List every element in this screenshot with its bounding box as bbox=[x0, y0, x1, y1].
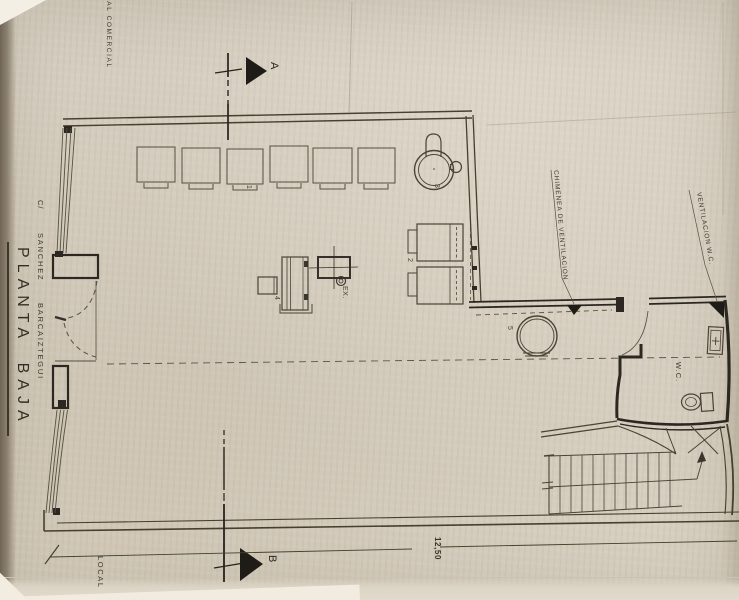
section-line-b bbox=[214, 430, 263, 582]
section-line-a bbox=[215, 53, 267, 140]
chimney-marker-icon bbox=[567, 305, 582, 315]
table-symbol bbox=[270, 146, 308, 182]
wc-room-label: W.C. bbox=[675, 362, 683, 382]
street-name-1: SANCHEZ bbox=[37, 233, 45, 281]
street-prefix: C/ bbox=[37, 200, 45, 210]
page-title: PLANTA BAJA bbox=[14, 247, 30, 427]
storefront-glazing bbox=[46, 128, 75, 513]
item-number-5: 5 bbox=[506, 326, 513, 330]
street-name-2: BARCAIZTEGUI bbox=[37, 303, 45, 380]
dimension-line bbox=[45, 541, 737, 564]
paper-creases bbox=[349, 2, 737, 215]
section-label-a: A bbox=[268, 62, 279, 69]
zone-label-bottom: LOCAL bbox=[97, 556, 105, 589]
toilet-symbol bbox=[682, 393, 714, 412]
extractor-label: EX. bbox=[341, 286, 348, 299]
dashed-axis-lines bbox=[107, 220, 720, 364]
zone-label-top: CAL COMERCIAL bbox=[105, 0, 112, 69]
item-number-1: 1 bbox=[245, 185, 252, 189]
item-number-3: 3 bbox=[433, 184, 440, 188]
dimension-value: 12,50 bbox=[433, 537, 441, 560]
oven-symbols bbox=[408, 224, 477, 304]
extractor-symbol bbox=[309, 246, 358, 289]
item-number-4: 4 bbox=[273, 296, 280, 300]
entrance-pillars bbox=[53, 251, 98, 408]
annotation-leaders bbox=[551, 170, 717, 304]
table-symbol bbox=[358, 148, 395, 183]
round-table-symbol bbox=[517, 316, 557, 356]
wc-room bbox=[617, 300, 729, 430]
item-number-2: 2 bbox=[406, 258, 413, 262]
section-label-b: B bbox=[266, 555, 277, 562]
outer-walls bbox=[44, 111, 739, 531]
table-symbol bbox=[313, 148, 352, 183]
sink-symbol bbox=[707, 327, 723, 355]
staircase bbox=[541, 421, 721, 514]
floor-plan-linework bbox=[0, 0, 739, 600]
section-arrow-a-icon bbox=[246, 57, 267, 85]
table-symbol bbox=[182, 148, 220, 183]
stair-direction-arrow-icon bbox=[697, 451, 706, 463]
prep-tables bbox=[137, 146, 395, 190]
blueprint-page: CAL COMERCIAL C/ SANCHEZ BARCAIZTEGUI PL… bbox=[0, 0, 739, 600]
water-heater-symbol bbox=[415, 134, 462, 190]
counter-symbol bbox=[258, 257, 312, 313]
title-underline bbox=[7, 242, 9, 436]
table-symbol bbox=[137, 147, 175, 182]
table-symbol bbox=[227, 149, 263, 184]
entrance-door-swings bbox=[55, 281, 97, 361]
vent-marker-icon bbox=[708, 302, 724, 318]
